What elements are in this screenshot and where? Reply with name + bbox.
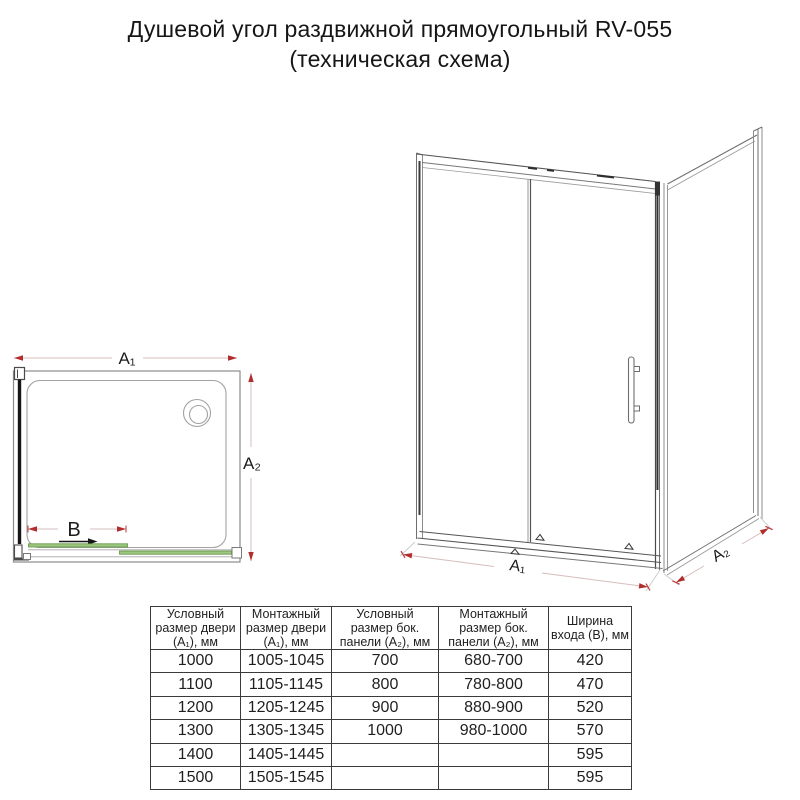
left-wall-profile [417,153,423,539]
table-cell: 1000 [151,650,241,673]
table-cell: 980-1000 [439,720,549,743]
table-row: 14001405-1445595 [151,743,632,766]
iso-dimension-a2: A₂ [664,517,773,585]
table-cell: 595 [549,766,632,789]
door-divider-edge [528,179,531,542]
table-cell: 1105-1145 [241,673,332,696]
table-cell [439,766,549,789]
door-glass-panel-1 [29,544,128,547]
dim-arrow-icon [228,355,237,360]
plan-dimension-a2: A₂ [243,373,261,561]
table-cell: 595 [549,743,632,766]
col-header-entry-width: Ширина входа (B), мм [549,607,632,650]
col-header-door-nominal: Условный размер двери (A₁), мм [151,607,241,650]
table-cell [332,766,439,789]
table-cell: 1400 [151,743,241,766]
table-cell: 880-900 [439,696,549,719]
table-cell [332,743,439,766]
table-cell: 780-800 [439,673,549,696]
plan-dim-a1-label: A₁ [118,349,135,368]
table-row: 15001505-1545595 [151,766,632,789]
table-row: 11001105-1145800780-800470 [151,673,632,696]
plan-dim-a2-label: A₂ [243,454,261,473]
table-cell: 1205-1245 [241,696,332,719]
table-cell: 1305-1345 [241,720,332,743]
side-panel [663,127,762,575]
table-cell: 700 [332,650,439,673]
table-cell: 1000 [332,720,439,743]
dim-arrow-icon [248,373,253,382]
title-line-2: (техническая схема) [0,44,800,74]
plan-view-drawing: A₁ B [0,328,300,590]
plan-dim-b-label: B [67,519,80,541]
table-cell: 1505-1545 [241,766,332,789]
table-cell: 570 [549,720,632,743]
table-cell: 1500 [151,766,241,789]
dim-arrow-icon [248,552,253,561]
table-cell: 420 [549,650,632,673]
table-cell: 1405-1445 [241,743,332,766]
table-cell: 800 [332,673,439,696]
table-cell: 470 [549,673,632,696]
table-cell: 1300 [151,720,241,743]
dim-arrow-icon [14,355,23,360]
col-header-door-mounting: Монтажный размер двери (A₁), мм [241,607,332,650]
top-rail [417,154,656,194]
tray-outline [14,371,241,562]
iso-view-drawing: A₁ A₂ [390,105,800,605]
size-table: Условный размер двери (A₁), мм Монтажный… [150,606,632,790]
iso-dim-a2-label: A₂ [709,543,732,566]
table-cell: 520 [549,696,632,719]
door-handle [629,357,640,423]
table-cell [439,743,549,766]
size-table-header-row: Условный размер двери (A₁), мм Монтажный… [151,607,632,650]
page-title: Душевой угол раздвижной прямоугольный RV… [0,14,800,75]
plan-dimension-a1: A₁ [14,349,237,368]
table-row: 12001205-1245900880-900520 [151,696,632,719]
corner-post [655,182,660,571]
size-table-body: 10001005-1045700680-70042011001105-11458… [151,650,632,790]
wall-profile-top [15,368,25,380]
table-row: 10001005-1045700680-700420 [151,650,632,673]
door-glass-panel-2 [120,551,232,554]
wall-profile-right [232,548,242,559]
table-cell: 1100 [151,673,241,696]
table-cell: 1200 [151,696,241,719]
table-row: 13001305-13451000980-1000570 [151,720,632,743]
col-header-panel-mounting: Монтажный размер бок. панели (A₂), мм [439,607,549,650]
title-line-1: Душевой угол раздвижной прямоугольный RV… [0,14,800,44]
col-header-panel-nominal: Условный размер бок. панели (A₂), мм [332,607,439,650]
table-cell: 680-700 [439,650,549,673]
table-cell: 900 [332,696,439,719]
iso-dim-a1-label: A₁ [509,557,527,576]
table-cell: 1005-1045 [241,650,332,673]
technical-schema-page: Душевой угол раздвижной прямоугольный RV… [0,0,800,800]
bottom-rail [418,532,663,569]
